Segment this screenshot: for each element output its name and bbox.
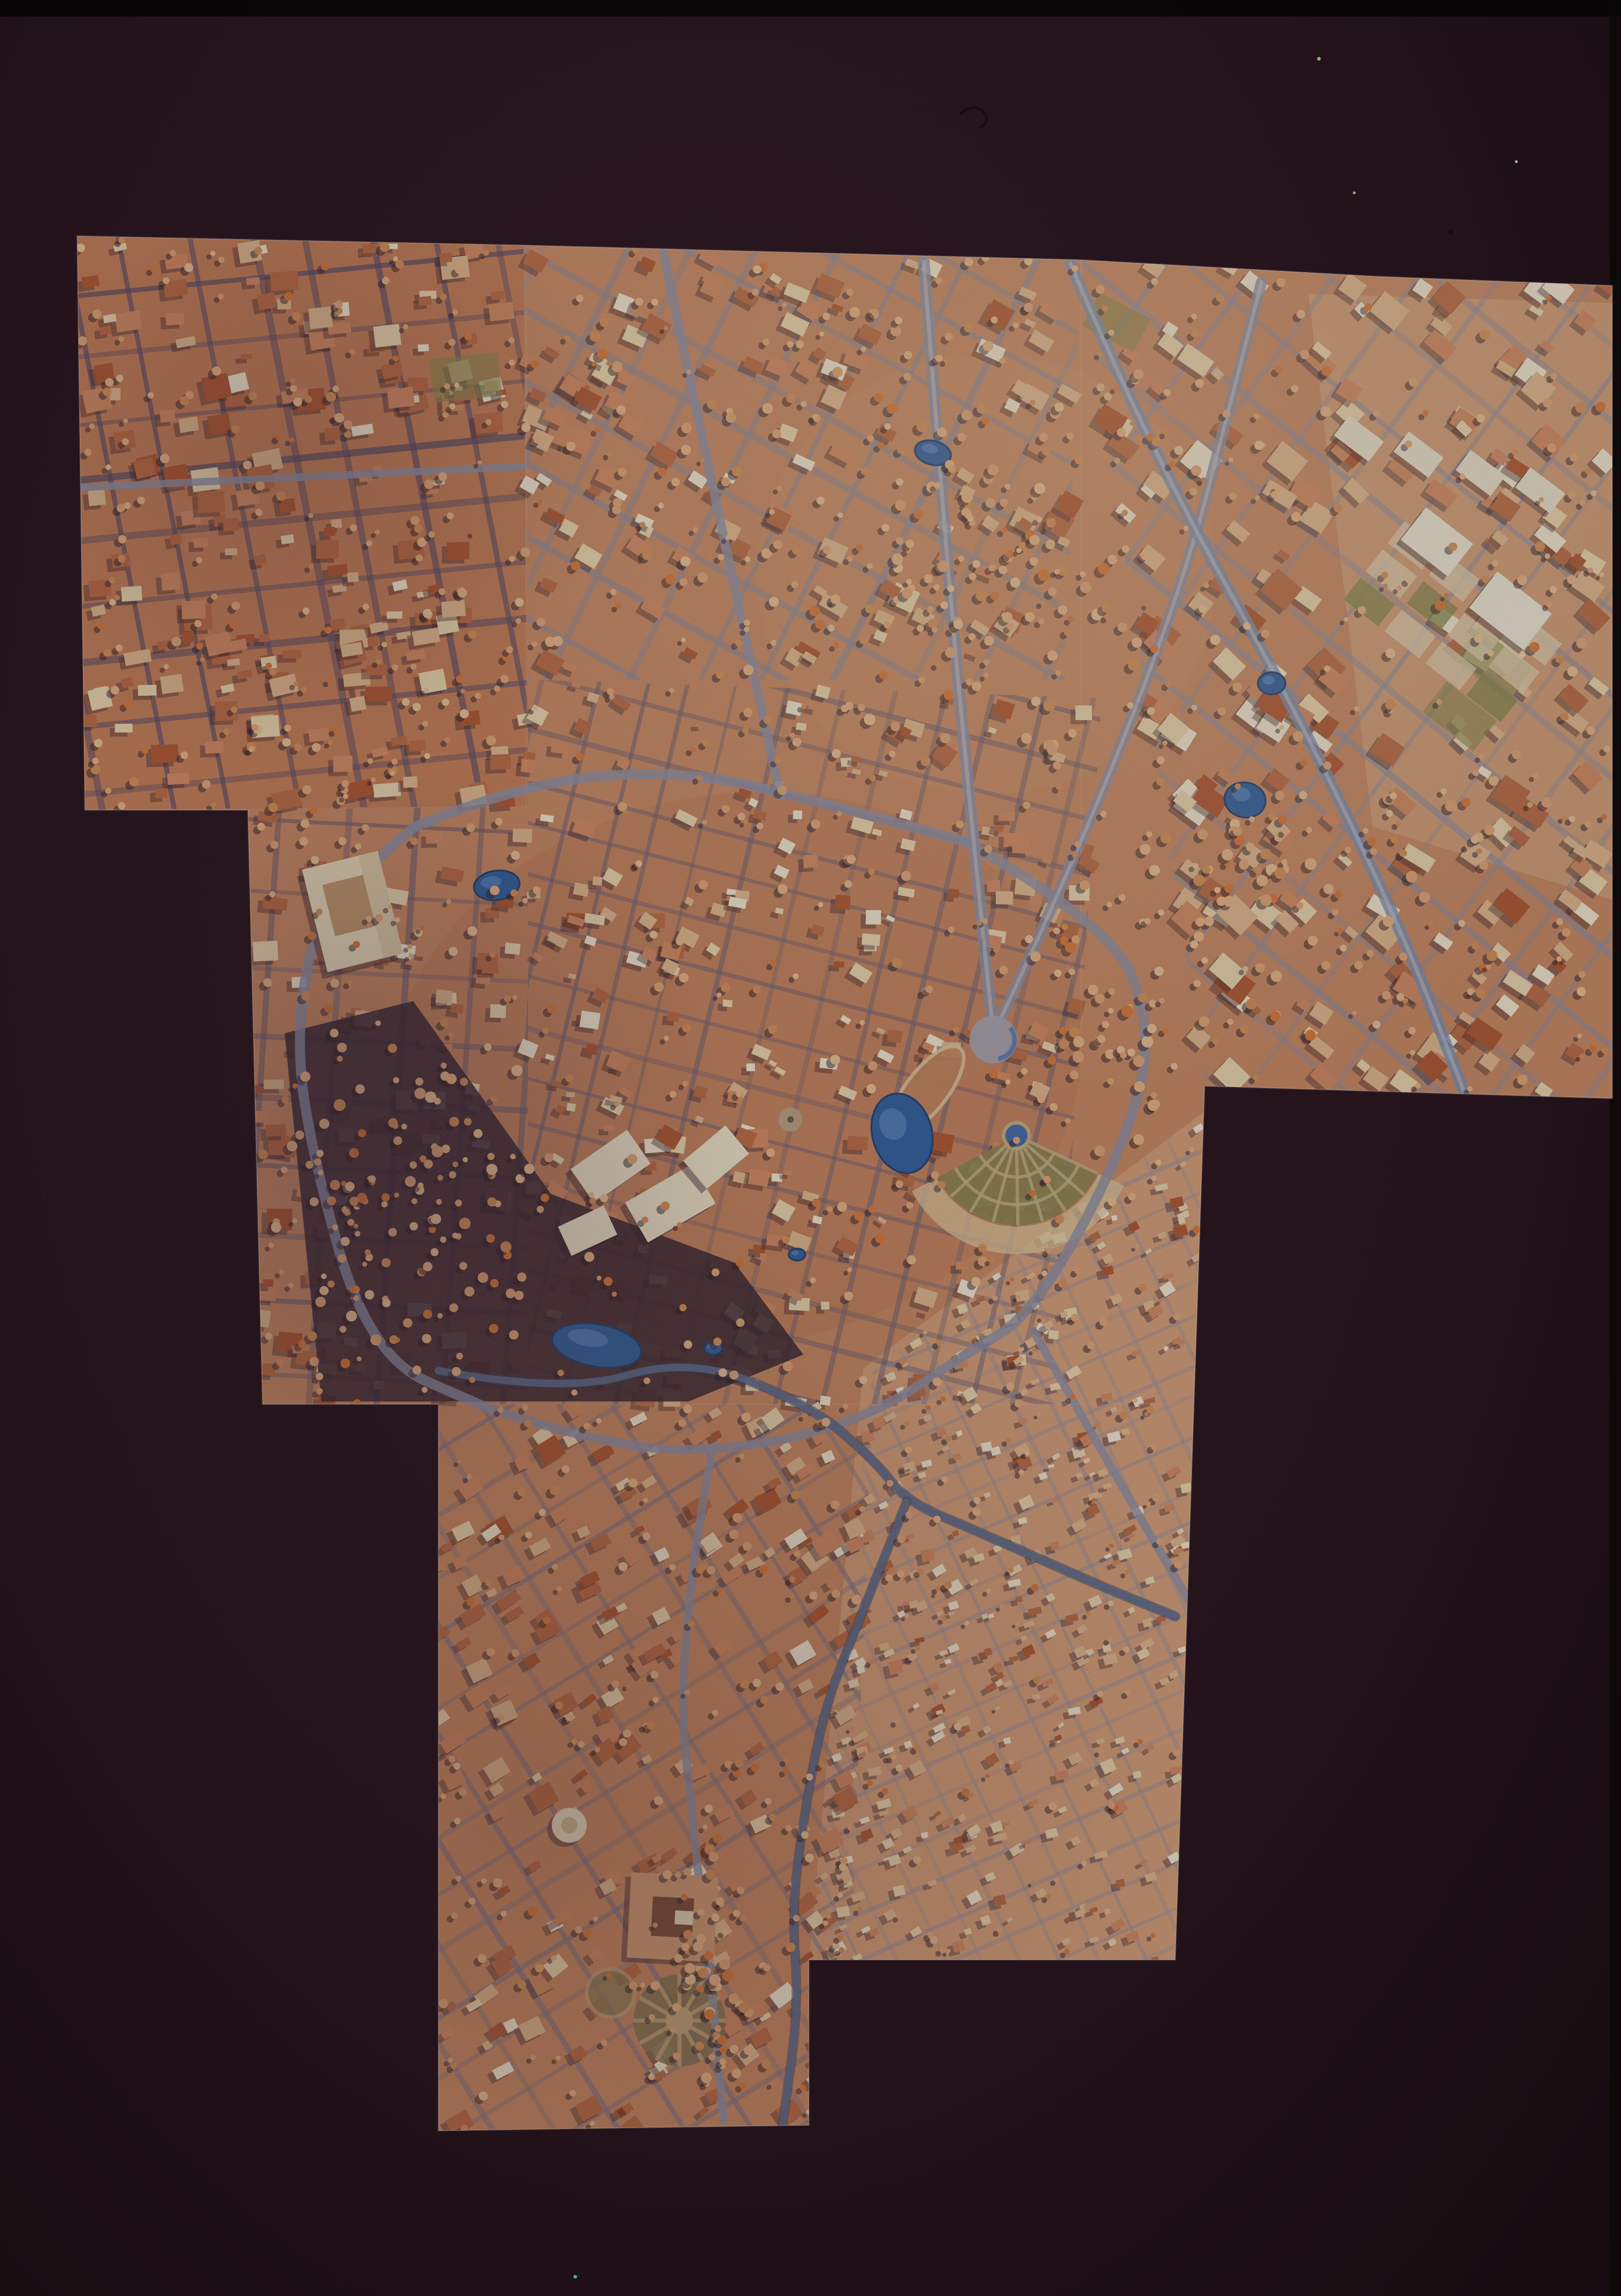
city-aerial-photomosaic [0,0,1621,2296]
slide-photo-of-city-photomosaic [0,0,1621,2296]
dust-speck [1448,230,1453,234]
dust-speck [1353,191,1356,194]
dust-speck [1317,57,1321,61]
photomosaic-stage [0,0,1621,2296]
dust-speck [573,2275,577,2279]
dust-speck [1515,160,1518,163]
slide-top-edge-strip [0,0,1621,17]
